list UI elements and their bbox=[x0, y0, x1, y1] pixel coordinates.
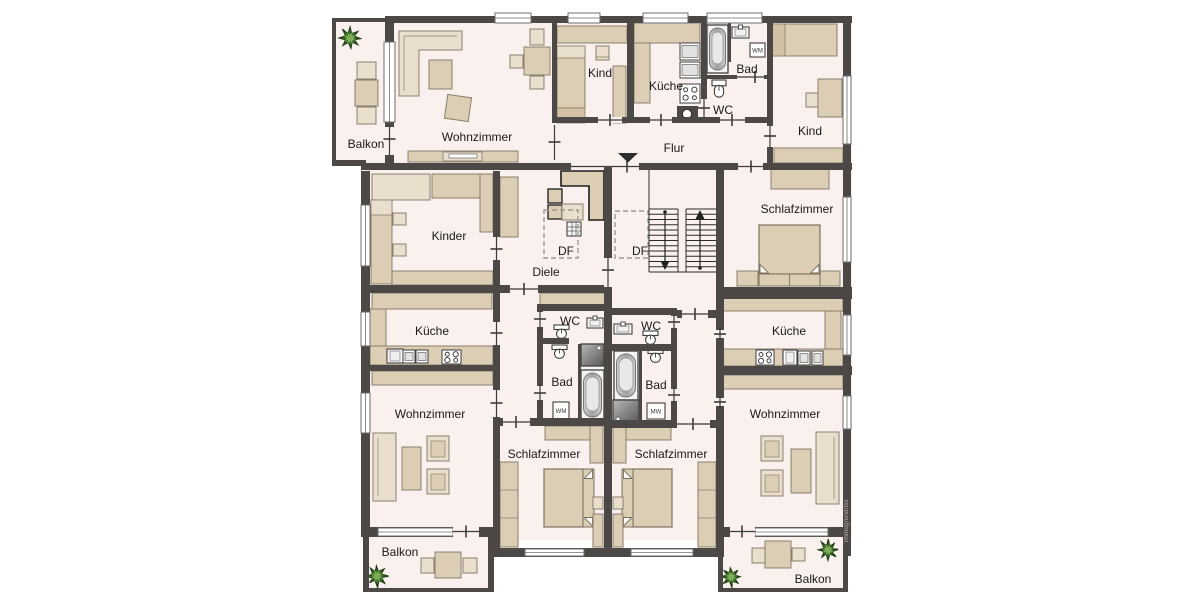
svg-text:Diele: Diele bbox=[532, 265, 560, 279]
svg-text:Kind: Kind bbox=[588, 66, 612, 80]
svg-text:Flur: Flur bbox=[664, 141, 685, 155]
svg-text:Balkon: Balkon bbox=[382, 545, 419, 559]
svg-text:Wohnzimmer: Wohnzimmer bbox=[750, 407, 820, 421]
svg-text:Wohnzimmer: Wohnzimmer bbox=[395, 407, 465, 421]
svg-text:Küche: Küche bbox=[772, 324, 806, 338]
svg-text:Schlafzimmer: Schlafzimmer bbox=[508, 447, 581, 461]
svg-text:Balkon: Balkon bbox=[795, 572, 832, 586]
svg-text:Küche: Küche bbox=[649, 79, 683, 93]
svg-text:WC: WC bbox=[641, 319, 661, 333]
svg-text:Bad: Bad bbox=[645, 378, 666, 392]
svg-text:Bad: Bad bbox=[736, 62, 757, 76]
svg-text:Kinder: Kinder bbox=[432, 229, 467, 243]
svg-text:WC: WC bbox=[713, 103, 733, 117]
svg-text:Kind: Kind bbox=[798, 124, 822, 138]
svg-text:MW: MW bbox=[651, 410, 662, 416]
svg-text:Schlafzimmer: Schlafzimmer bbox=[761, 202, 834, 216]
svg-text:DF: DF bbox=[632, 244, 648, 258]
svg-text:Balkon: Balkon bbox=[348, 137, 385, 151]
svg-text:Schlafzimmer: Schlafzimmer bbox=[635, 447, 708, 461]
svg-text:WC: WC bbox=[560, 314, 580, 328]
svg-text:Küche: Küche bbox=[415, 324, 449, 338]
svg-text:DF: DF bbox=[558, 244, 574, 258]
svg-text:WM: WM bbox=[556, 409, 567, 415]
svg-text:Wohnzimmer: Wohnzimmer bbox=[442, 130, 512, 144]
svg-text:immogrundriss: immogrundriss bbox=[843, 499, 850, 542]
svg-text:Bad: Bad bbox=[551, 375, 572, 389]
svg-text:WM: WM bbox=[752, 49, 763, 55]
